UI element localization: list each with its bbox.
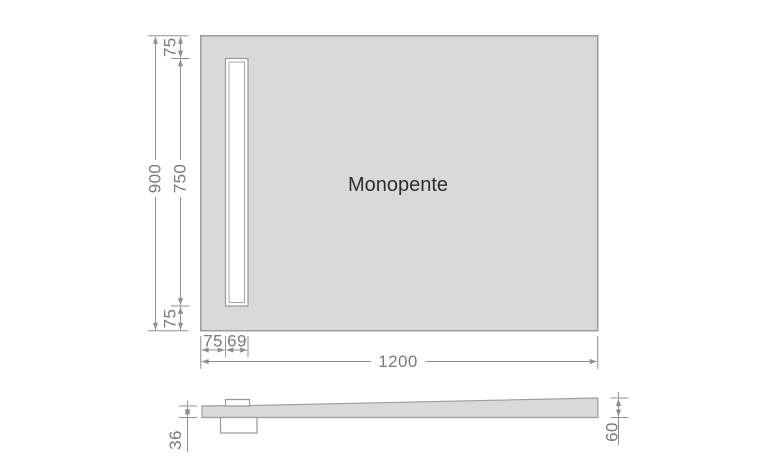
drain-channel-inner: [229, 62, 245, 303]
dim-label-75-bottom: 75: [161, 309, 180, 329]
dim-channel-width: 69: [226, 332, 247, 351]
dim-label-750: 750: [171, 164, 190, 194]
side-profile-view: 36 60: [166, 392, 629, 452]
dim-profile-left-height: 36: [166, 401, 197, 453]
dim-top-margin: 75: [161, 37, 181, 58]
dim-bottom-margin: 75: [161, 307, 181, 330]
dim-label-1200: 1200: [378, 352, 417, 371]
dim-profile-right-height: 60: [603, 392, 629, 445]
dim-label-900: 900: [146, 164, 165, 194]
bottom-dimensions: 75 69 1200: [201, 332, 598, 372]
dim-overall-depth: 900: [146, 37, 165, 330]
dim-channel-length: 750: [171, 59, 190, 305]
technical-drawing: Monopente 900 750 75: [0, 0, 767, 474]
dim-channel-offset: 75: [202, 332, 225, 351]
dim-label-69: 69: [227, 332, 247, 351]
drain-grate-profile: [226, 400, 250, 407]
top-view: Monopente: [201, 36, 598, 331]
dim-label-60: 60: [603, 422, 622, 442]
dim-label-75-offset: 75: [203, 332, 223, 351]
dim-overall-width: 1200: [202, 352, 597, 371]
left-dimensions: 900 750 75 75: [146, 36, 190, 331]
drain-outlet-profile: [221, 418, 258, 434]
shower-tray-side-profile: [202, 398, 598, 418]
product-label: Monopente: [348, 174, 448, 196]
dim-label-36: 36: [166, 430, 185, 450]
drain-channel: [226, 59, 249, 307]
drawing-canvas: Monopente 900 750 75: [0, 0, 767, 474]
dim-label-75-top: 75: [161, 37, 180, 57]
